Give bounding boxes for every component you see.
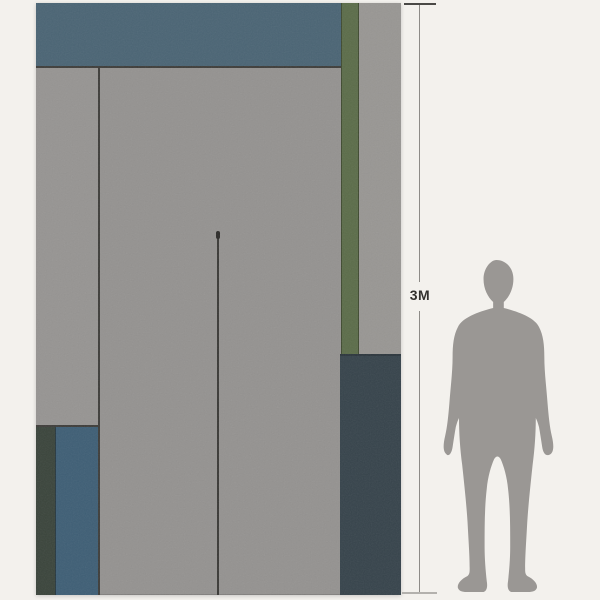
bottom-right-slate-panel	[340, 354, 401, 595]
horizontal-seam	[36, 66, 342, 68]
height-label: 3M	[398, 287, 442, 303]
bottom-left-dark-green-stripe	[36, 427, 55, 595]
human-silhouette-shape	[444, 260, 554, 592]
measure-line-upper	[419, 5, 420, 282]
product-scale-view: 3M	[0, 0, 600, 600]
left-gray-column	[36, 68, 98, 425]
mural-artwork	[36, 3, 401, 595]
top-blue-band	[36, 3, 342, 66]
center-thin-line	[217, 233, 219, 595]
measure-top-tick	[404, 3, 436, 5]
human-silhouette-icon	[443, 259, 555, 593]
bottom-left-blue-panel	[55, 427, 98, 595]
measure-line-lower	[419, 311, 420, 593]
measure-bottom-tick	[402, 592, 437, 594]
top-right-gray-column	[359, 3, 401, 355]
vertical-seam	[98, 66, 100, 595]
center-line-knob	[216, 231, 220, 239]
olive-green-stripe	[341, 3, 359, 355]
